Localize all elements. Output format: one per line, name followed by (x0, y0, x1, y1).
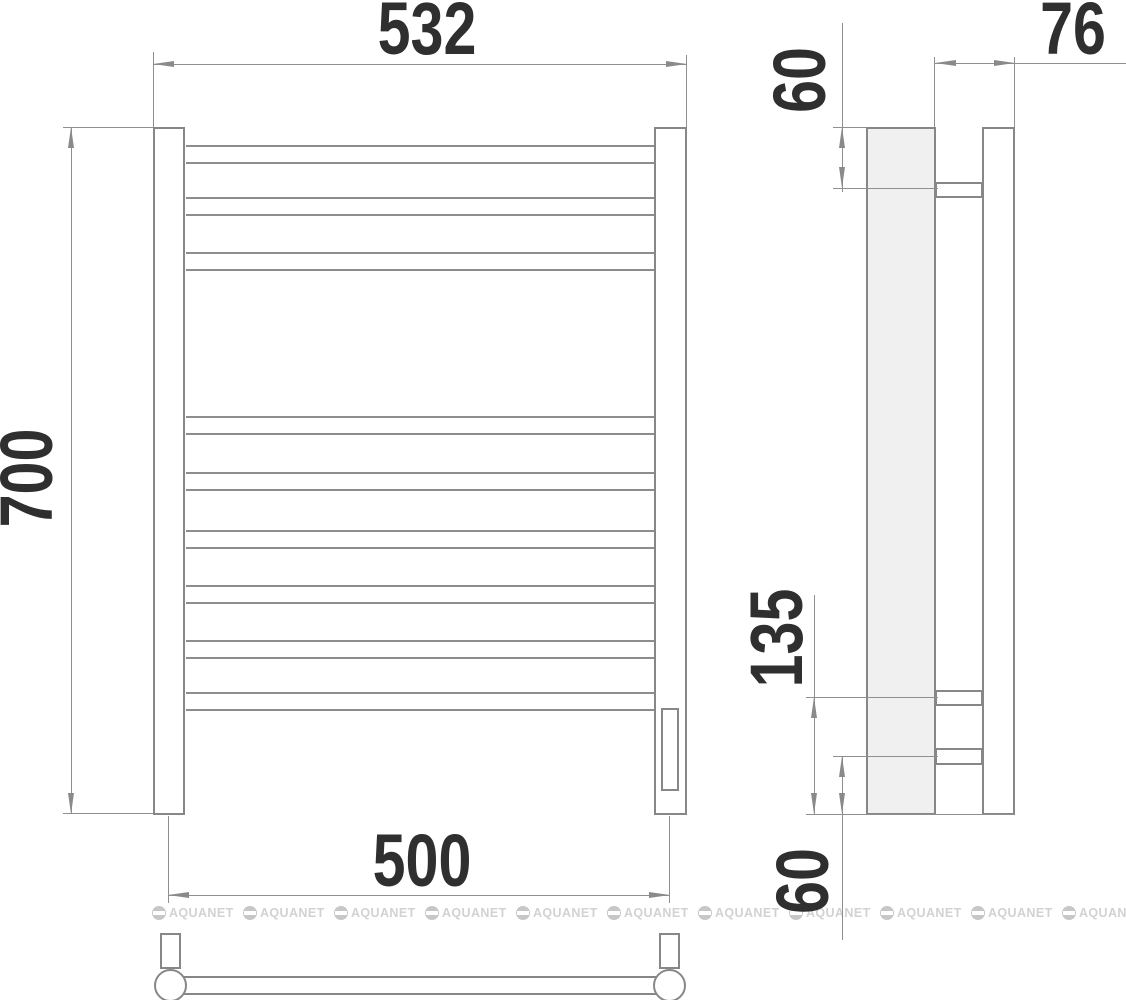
bottom-left-cap (154, 969, 187, 1000)
arrow-right-icon (649, 892, 670, 898)
heating-element-box (661, 708, 679, 791)
aquanet-logo-icon (243, 906, 257, 920)
watermark: AQUANET (243, 906, 316, 920)
extension-line (669, 816, 670, 903)
aquanet-logo-icon (334, 906, 348, 920)
wall-bracket-bottom (935, 748, 983, 765)
extension-line (63, 127, 153, 128)
rung-6 (186, 530, 654, 549)
rung-7 (186, 585, 654, 604)
dimension-label-76: 76 (993, 0, 1126, 68)
extension-line (806, 697, 938, 698)
extension-line (168, 816, 169, 903)
aquanet-logo-icon (1062, 906, 1076, 920)
rung-8 (186, 640, 654, 659)
bottom-tube (170, 976, 670, 995)
wall-bracket-middle (935, 690, 983, 706)
aquanet-logo-icon (698, 906, 712, 920)
rung-1 (186, 145, 654, 164)
bottom-right-stub (659, 933, 680, 969)
arrow-down-icon (811, 793, 817, 814)
watermark: AQUANET (607, 906, 680, 920)
side-wall-rail (982, 127, 1015, 815)
watermark: AQUANET (880, 906, 953, 920)
aquanet-logo-icon (152, 906, 166, 920)
arrow-down-icon (839, 793, 845, 814)
front-left-post (153, 127, 185, 815)
arrow-up-icon (839, 127, 845, 148)
aquanet-logo-icon (607, 906, 621, 920)
aquanet-logo-icon (971, 906, 985, 920)
watermark: AQUANET (1062, 906, 1126, 920)
arrow-left-icon (935, 60, 956, 66)
wall-bracket-top (935, 182, 983, 198)
rung-4 (186, 416, 654, 435)
aquanet-logo-icon (516, 906, 530, 920)
technical-drawing: 532 700 500 76 60 (0, 0, 1126, 1000)
watermark: AQUANET (152, 906, 225, 920)
dimension-label-135: 135 (738, 550, 816, 726)
watermark-row: AQUANET AQUANET AQUANET AQUANET AQUANET … (152, 906, 1126, 920)
watermark: AQUANET (516, 906, 589, 920)
dimension-label-60-top: 60 (761, 16, 839, 144)
arrow-down-icon (839, 167, 845, 188)
extension-line (63, 813, 153, 814)
dimension-label-500: 500 (342, 822, 502, 900)
dimension-label-700: 700 (0, 390, 66, 566)
side-post (866, 127, 936, 815)
rung-3 (186, 252, 654, 271)
watermark: AQUANET (334, 906, 407, 920)
extension-line (806, 814, 1013, 815)
arrow-up-icon (839, 756, 845, 777)
arrow-left-icon (168, 892, 189, 898)
arrow-up-icon (68, 127, 74, 148)
aquanet-logo-icon (425, 906, 439, 920)
bottom-left-stub (160, 933, 181, 969)
arrow-left-icon (153, 61, 174, 67)
arrow-down-icon (68, 793, 74, 814)
arrow-right-icon (666, 61, 687, 67)
aquanet-logo-icon (880, 906, 894, 920)
rung-5 (186, 472, 654, 491)
watermark: AQUANET (425, 906, 498, 920)
bottom-right-cap (653, 969, 686, 1000)
rung-9 (186, 692, 654, 711)
dimension-label-532: 532 (347, 0, 507, 68)
extension-line (833, 756, 938, 757)
extension-line (934, 57, 935, 127)
dimension-label-60-bottom: 60 (764, 817, 842, 945)
extension-line (833, 188, 938, 189)
rung-2 (186, 197, 654, 216)
dimension-line (71, 127, 72, 814)
watermark: AQUANET (971, 906, 1044, 920)
